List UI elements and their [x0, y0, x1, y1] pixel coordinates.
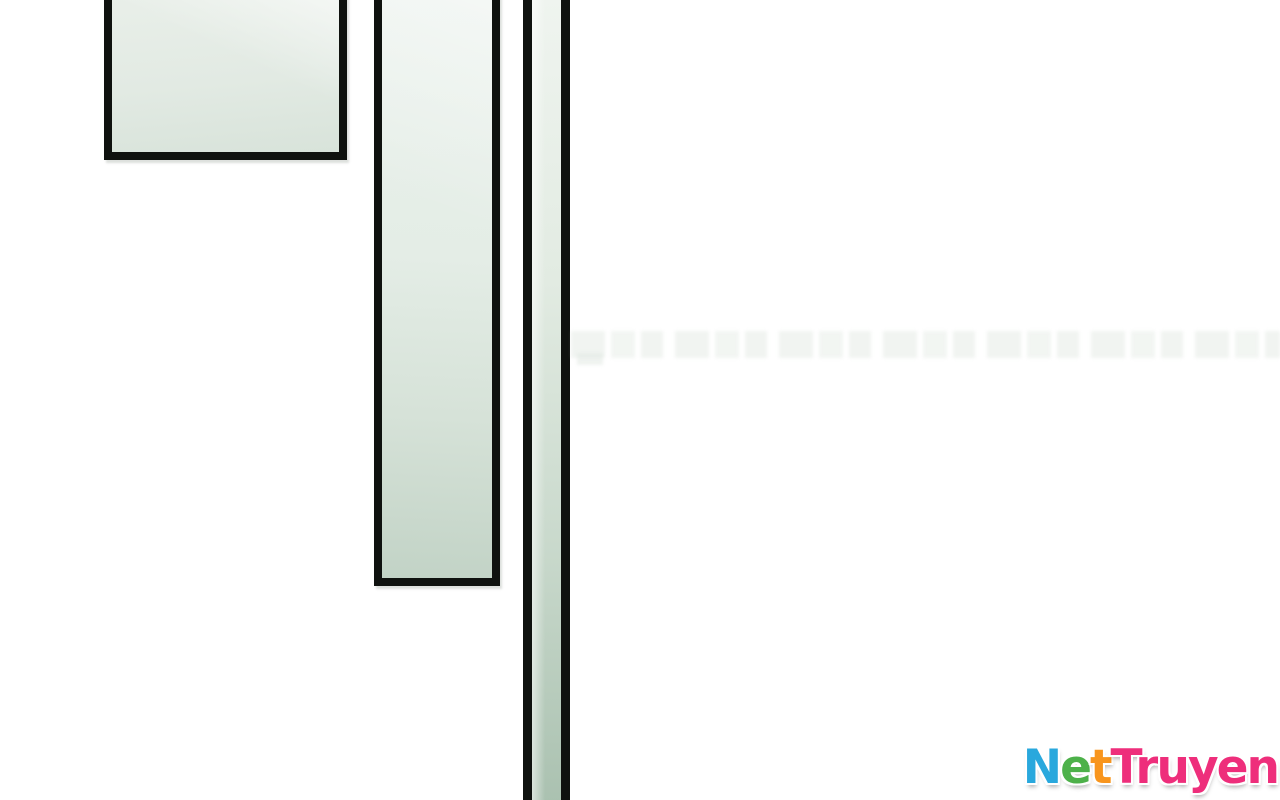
logo-letter: T	[1110, 740, 1135, 795]
comic-panel-vertical-bar	[523, 0, 570, 800]
logo-letter: e	[1217, 740, 1247, 795]
comic-page-image: NetTruyen	[0, 0, 1280, 800]
faint-watermark-band	[571, 331, 1280, 358]
logo-letter: n	[1247, 740, 1278, 795]
comic-panel-top-left	[104, 0, 347, 160]
comic-panel-middle-tall	[374, 0, 500, 586]
logo-letter: t	[1090, 740, 1110, 795]
logo-letter: r	[1135, 740, 1156, 795]
logo-letter: N	[1023, 740, 1060, 795]
logo-letter: y	[1188, 740, 1217, 795]
logo-letter: e	[1060, 740, 1090, 795]
logo-letter: u	[1157, 740, 1188, 795]
nettruyen-watermark-logo: NetTruyen	[1023, 740, 1278, 795]
